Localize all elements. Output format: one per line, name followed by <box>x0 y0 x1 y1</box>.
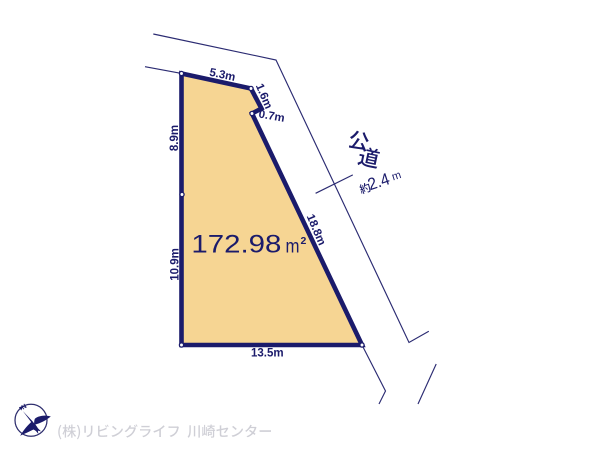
svg-text:m: m <box>286 236 300 257</box>
svg-text:m: m <box>390 169 402 183</box>
svg-text:13.5m: 13.5m <box>251 347 284 359</box>
svg-text:10.9m: 10.9m <box>170 248 182 281</box>
svg-text:172.98: 172.98 <box>191 230 281 258</box>
svg-text:8.9m: 8.9m <box>169 125 181 151</box>
svg-text:2.4: 2.4 <box>365 169 392 194</box>
svg-text:N: N <box>20 403 28 412</box>
svg-text:0.7m: 0.7m <box>258 108 286 124</box>
svg-text:2: 2 <box>301 235 307 247</box>
